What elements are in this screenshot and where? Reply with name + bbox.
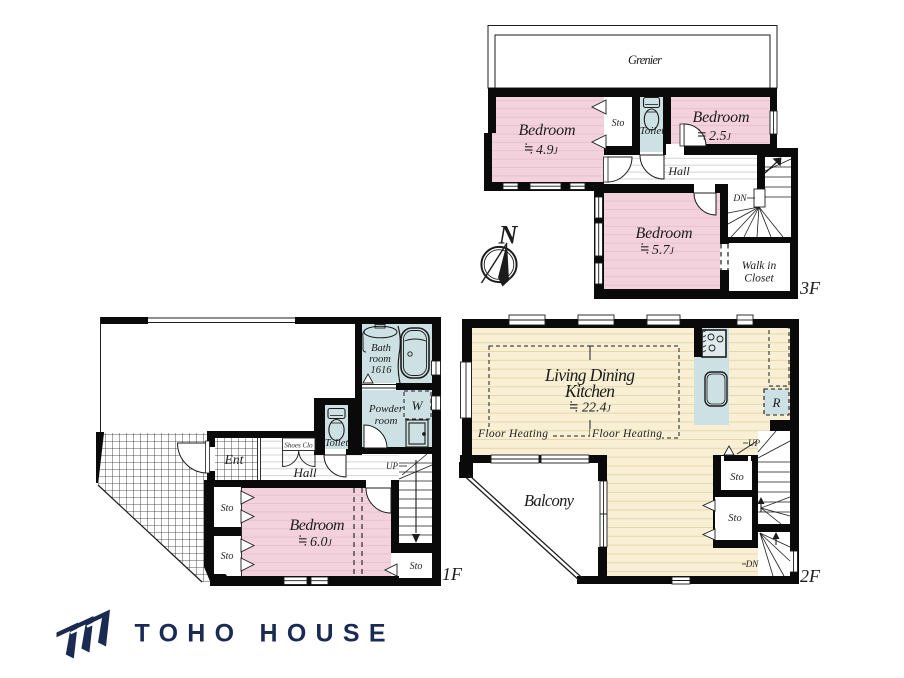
svg-text:Sto: Sto bbox=[221, 503, 234, 514]
svg-text:Hall: Hall bbox=[292, 465, 317, 480]
svg-text:DN: DN bbox=[745, 559, 759, 569]
svg-text:Toilet: Toilet bbox=[640, 125, 666, 137]
svg-text:Sto: Sto bbox=[221, 551, 234, 562]
svg-text:Shoes Clo: Shoes Clo bbox=[284, 442, 313, 450]
svg-text:Sto: Sto bbox=[612, 118, 625, 129]
svg-text:room: room bbox=[375, 415, 398, 427]
svg-text:Kitchen: Kitchen bbox=[564, 381, 615, 401]
svg-text:Bedroom: Bedroom bbox=[519, 122, 576, 139]
svg-text:R: R bbox=[772, 395, 781, 410]
svg-text:UP: UP bbox=[386, 461, 398, 471]
svg-text:room: room bbox=[369, 354, 391, 365]
svg-text:1F: 1F bbox=[442, 564, 463, 584]
svg-text:3F: 3F bbox=[799, 278, 821, 298]
svg-text:Closet: Closet bbox=[744, 273, 774, 285]
svg-text:Bedroom: Bedroom bbox=[290, 517, 345, 534]
svg-text:Hall: Hall bbox=[667, 164, 690, 178]
svg-text:N: N bbox=[498, 221, 519, 250]
svg-text:TOHO HOUSE: TOHO HOUSE bbox=[135, 620, 386, 648]
svg-text:Sto: Sto bbox=[410, 561, 423, 572]
svg-text:Sto: Sto bbox=[728, 513, 741, 524]
svg-text:Bedroom: Bedroom bbox=[693, 109, 750, 126]
svg-text:Bedroom: Bedroom bbox=[636, 225, 693, 242]
svg-text:Grenier: Grenier bbox=[628, 53, 662, 67]
svg-text:Floor Heating: Floor Heating bbox=[477, 428, 548, 440]
svg-text:DN: DN bbox=[732, 194, 747, 204]
svg-text:Toilet: Toilet bbox=[325, 438, 350, 449]
svg-text:2F: 2F bbox=[800, 566, 821, 586]
svg-text:1616: 1616 bbox=[371, 365, 393, 376]
svg-text:W: W bbox=[412, 398, 424, 413]
svg-text:Sto: Sto bbox=[730, 472, 743, 483]
svg-text:Floor Heating: Floor Heating bbox=[591, 428, 662, 440]
svg-text:Powder: Powder bbox=[368, 403, 404, 415]
svg-text:Walk in: Walk in bbox=[742, 260, 777, 272]
svg-text:Ent: Ent bbox=[224, 452, 245, 467]
svg-text:Bath: Bath bbox=[371, 343, 391, 354]
svg-text:UP: UP bbox=[748, 438, 760, 448]
svg-text:Balcony: Balcony bbox=[524, 491, 575, 510]
